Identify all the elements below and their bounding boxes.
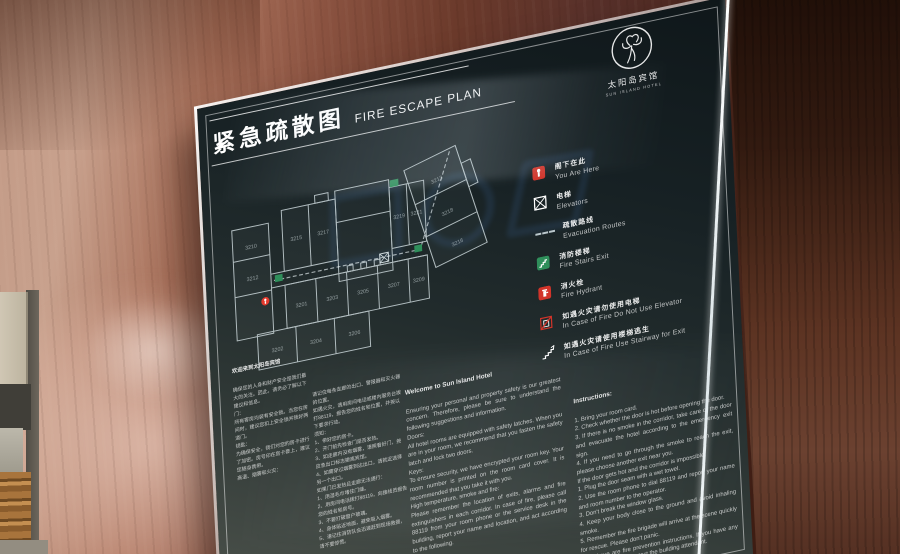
elevator-icon xyxy=(534,195,550,216)
right-wood-frame xyxy=(727,0,900,554)
no-elevator-icon xyxy=(540,314,556,335)
background-object-beige xyxy=(0,292,28,386)
background-floor xyxy=(0,540,48,554)
background-wood-planks xyxy=(0,472,31,544)
background-object-dark xyxy=(0,384,31,430)
glass-reflection-sheen xyxy=(248,342,772,541)
hydrant-icon xyxy=(538,284,554,305)
route-dash-icon xyxy=(535,224,555,236)
photo-scene: 太阳岛宾馆 SUN ISLAND HOTEL 紧急疏散图 FIRE ESCAPE… xyxy=(0,0,900,554)
fire-stairs-icon xyxy=(537,254,553,275)
background-object-glass xyxy=(0,428,23,474)
